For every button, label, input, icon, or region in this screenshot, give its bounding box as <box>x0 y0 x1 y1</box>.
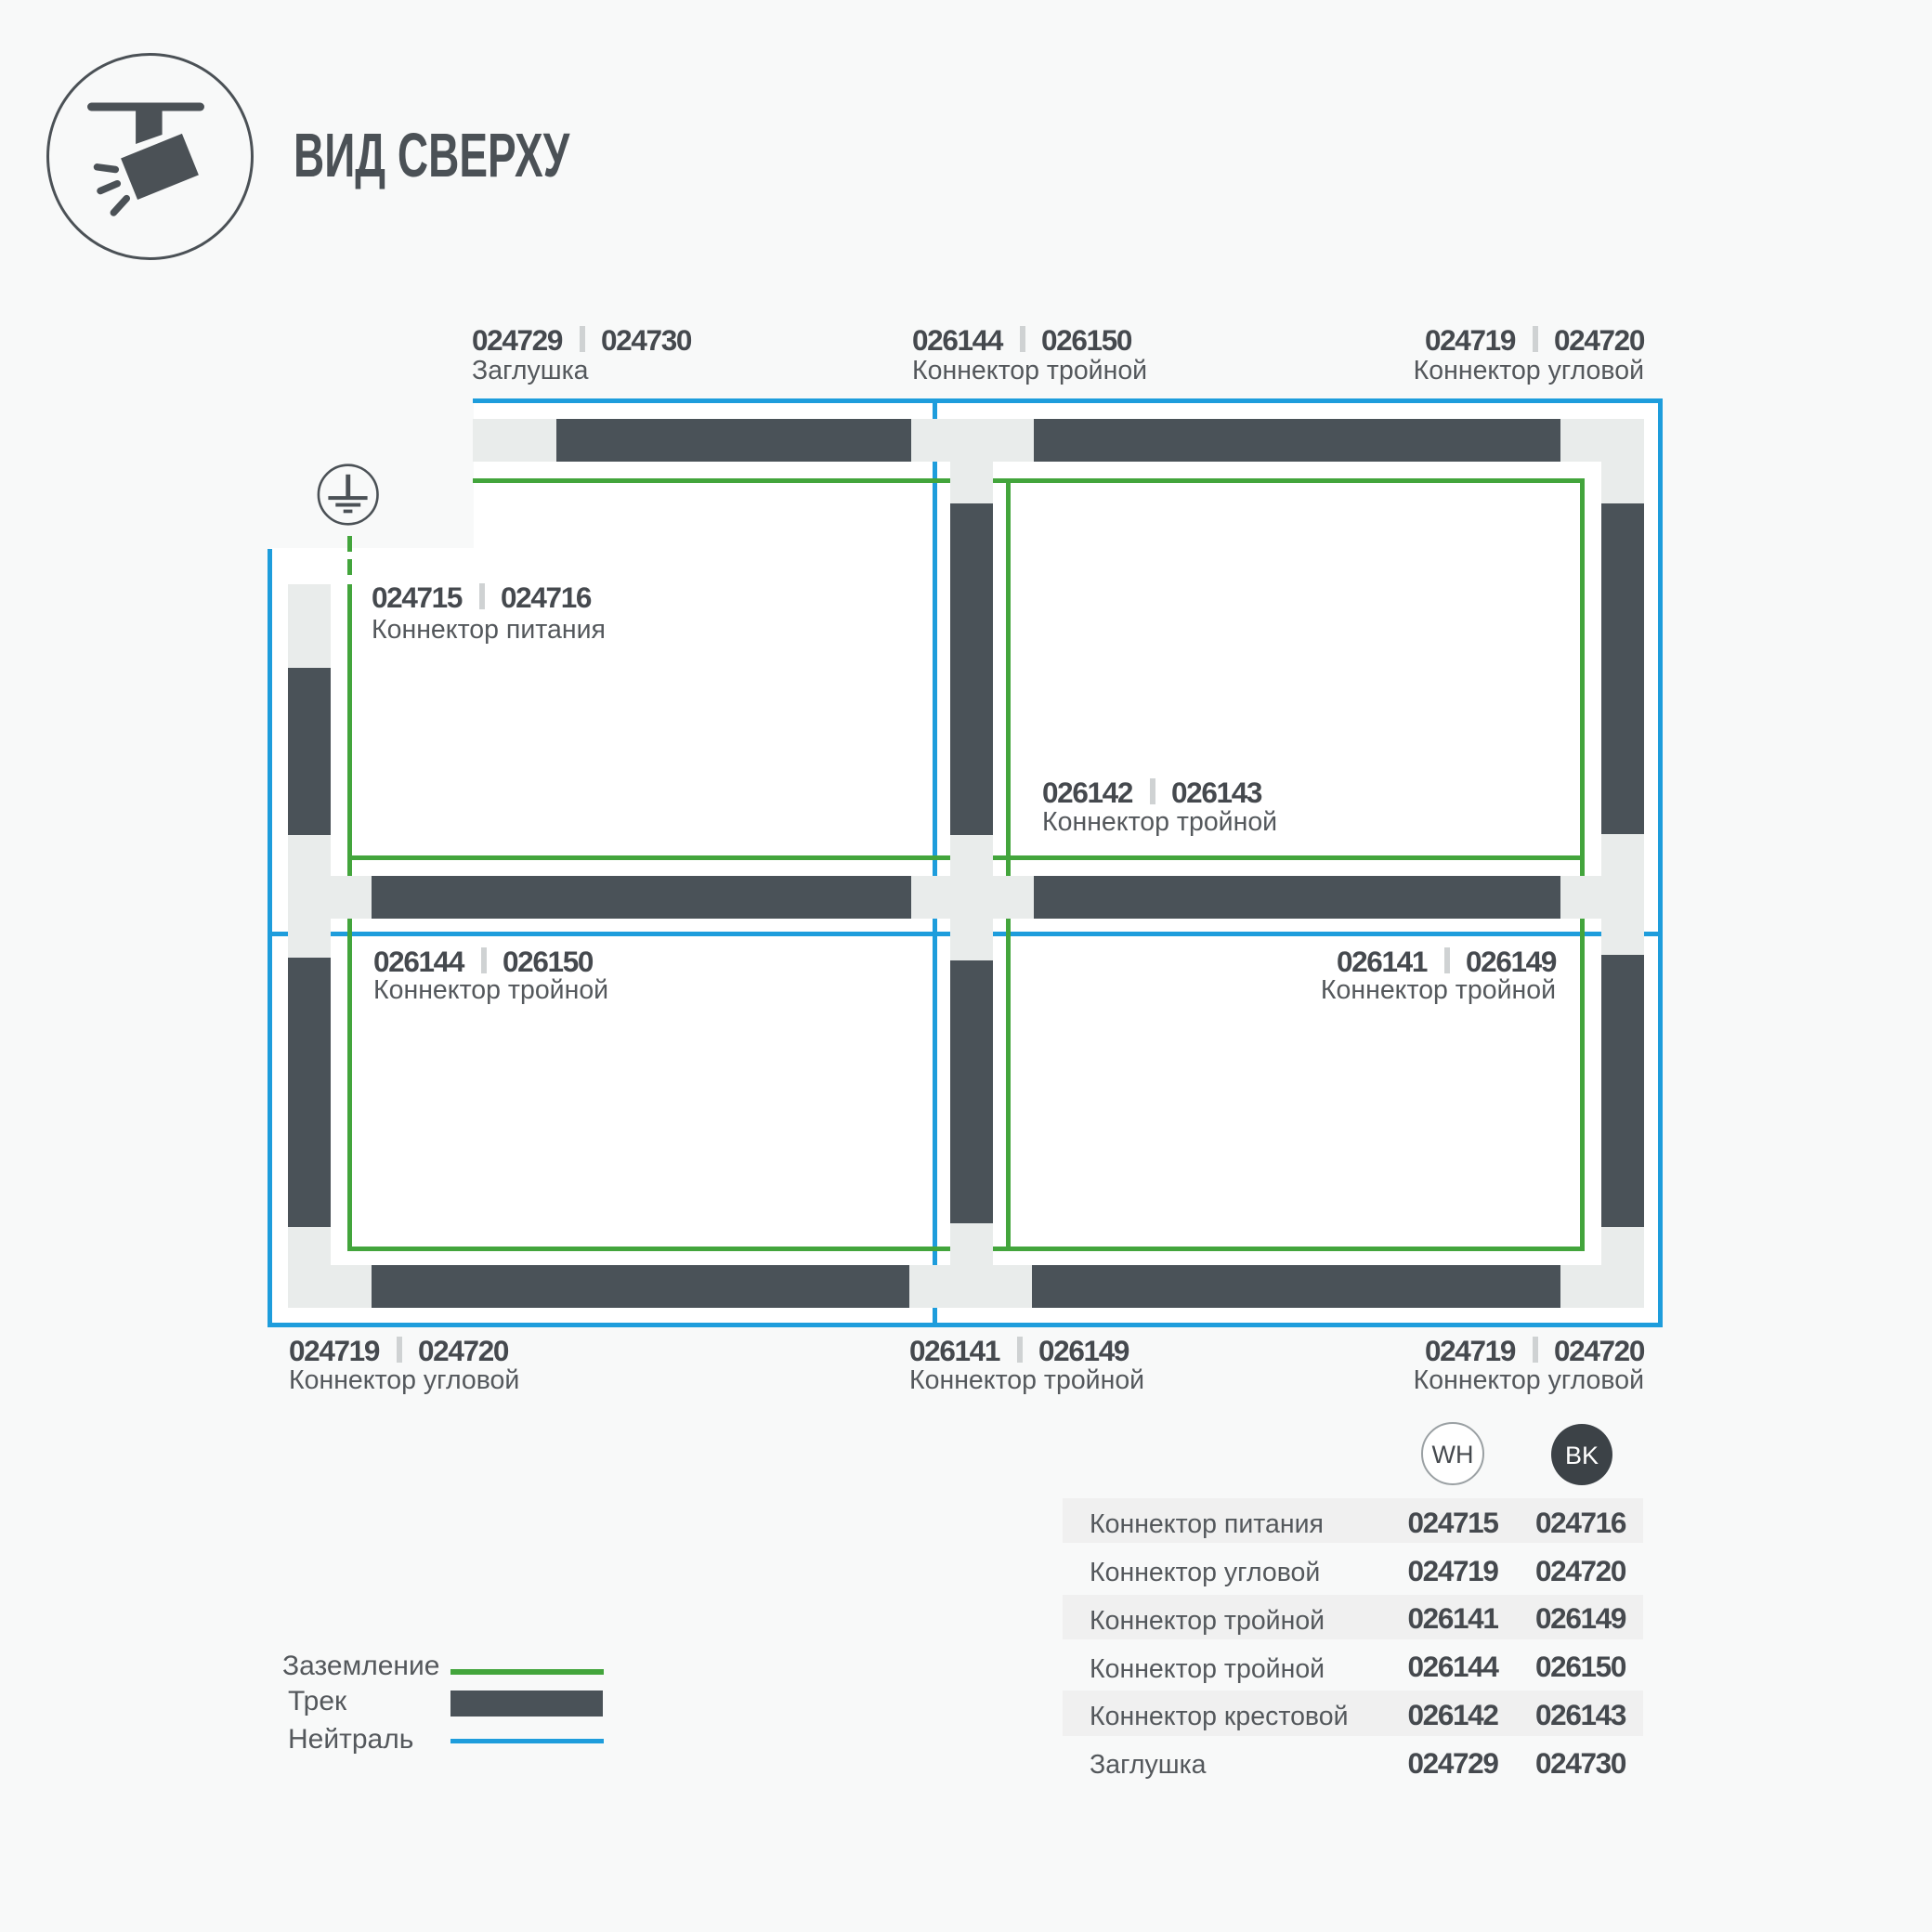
svg-text:WH: WH <box>1432 1441 1474 1469</box>
svg-text:BK: BK <box>1565 1442 1599 1469</box>
